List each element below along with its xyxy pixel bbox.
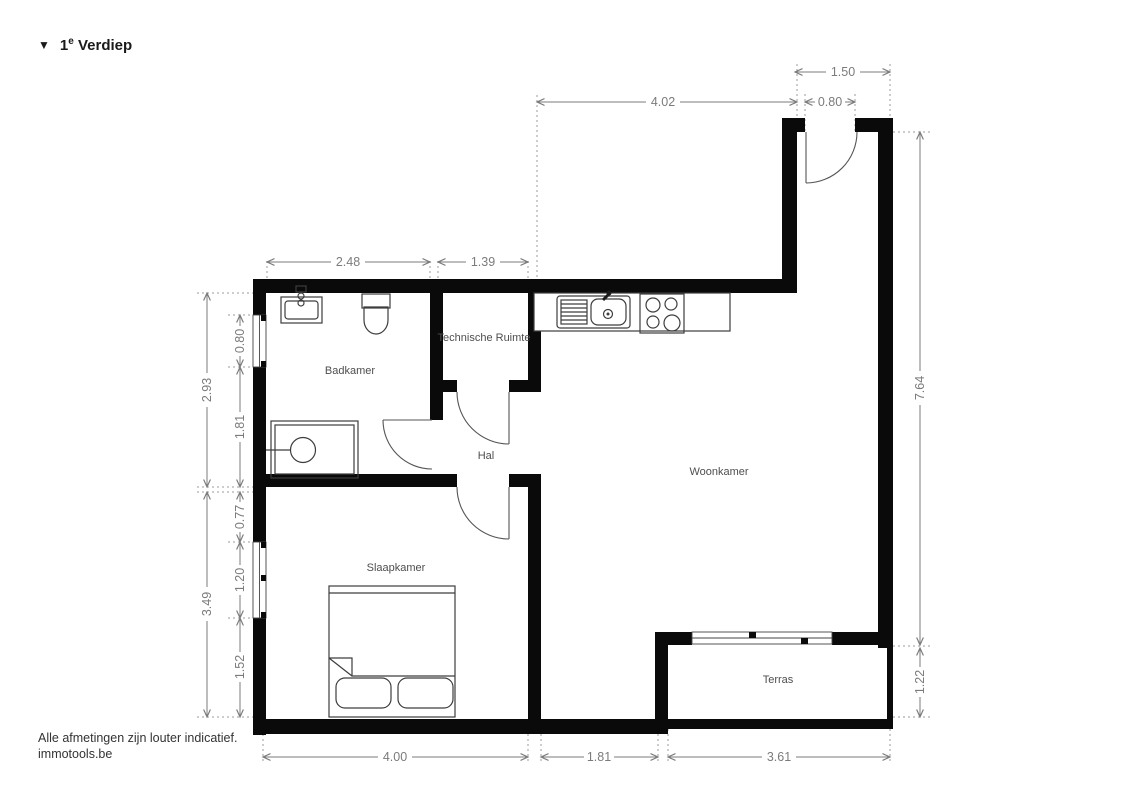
door-arc	[383, 420, 432, 469]
pillow	[398, 678, 453, 708]
badkamer-door	[383, 420, 432, 469]
room-label-woonkamer: Woonkamer	[689, 466, 748, 478]
room-label-technische-ruimte: Technische Ruimte	[438, 332, 531, 344]
wall	[832, 632, 893, 645]
floor-plan: Badkamer Technische Ruimte Hal Woonkamer…	[0, 0, 1131, 800]
bed	[329, 586, 455, 717]
dim-right-side-height: 7.64	[913, 376, 927, 400]
door-arc	[457, 392, 509, 444]
wall	[655, 632, 692, 645]
dim-living-top-width: 4.02	[651, 95, 675, 109]
window-slaapkamer	[253, 542, 266, 618]
toilet	[362, 294, 390, 334]
wall	[655, 632, 668, 734]
pillow	[336, 678, 391, 708]
room-label-badkamer: Badkamer	[325, 365, 375, 377]
door-arc	[457, 487, 509, 539]
room-label-terras: Terras	[763, 674, 794, 686]
dim-technische-ruimte-width: 1.39	[471, 255, 495, 269]
dim-slaapkamer-width: 4.00	[383, 750, 407, 764]
slaapkamer-door	[457, 487, 509, 539]
dim-badkamer-width: 2.48	[336, 255, 360, 269]
room-label-hal: Hal	[478, 450, 495, 462]
dim-badkamer-window: 0.80	[233, 329, 247, 353]
dim-entry-recess-width: 1.50	[831, 65, 855, 79]
footer-disclaimer: Alle afmetingen zijn louter indicatief.	[38, 730, 237, 746]
dim-terras-width: 3.61	[767, 750, 791, 764]
entrance-door	[806, 132, 857, 183]
wall	[253, 474, 457, 487]
wall	[430, 380, 457, 392]
window-badkamer	[253, 315, 266, 367]
wall	[878, 118, 893, 648]
wall	[797, 118, 805, 132]
dim-slaapkamer-window: 1.20	[233, 568, 247, 592]
footer: Alle afmetingen zijn louter indicatief. …	[38, 730, 237, 763]
wall	[782, 118, 797, 293]
entrance-door-arc	[806, 132, 857, 183]
wall	[430, 293, 443, 420]
wall	[528, 474, 541, 734]
dimension-lines: 1.50 4.02 0.80 2.48 1.39 2.93 0.80 1.81 …	[199, 64, 927, 764]
wall	[253, 719, 668, 734]
extension-lines	[197, 64, 932, 764]
dim-entry-door-width: 0.80	[818, 95, 842, 109]
dim-hal-bottom-width: 1.81	[587, 750, 611, 764]
dim-slaapkamer-height-total: 3.49	[200, 592, 214, 616]
dim-badkamer-height-total: 2.93	[200, 378, 214, 402]
dim-slaapkamer-upper: 0.77	[233, 505, 247, 529]
room-label-slaapkamer: Slaapkamer	[367, 562, 426, 574]
dim-badkamer-lower: 1.81	[233, 415, 247, 439]
wall	[509, 380, 541, 392]
terrace-wall	[887, 645, 893, 729]
wall	[253, 279, 797, 293]
sliding-window-terras	[692, 632, 832, 644]
dim-terras-height: 1.22	[913, 670, 927, 694]
shower	[266, 421, 358, 478]
terrace-wall	[668, 719, 893, 729]
dim-slaapkamer-lower: 1.52	[233, 655, 247, 679]
footer-site: immotools.be	[38, 746, 237, 762]
technische-ruimte-door	[457, 392, 509, 444]
